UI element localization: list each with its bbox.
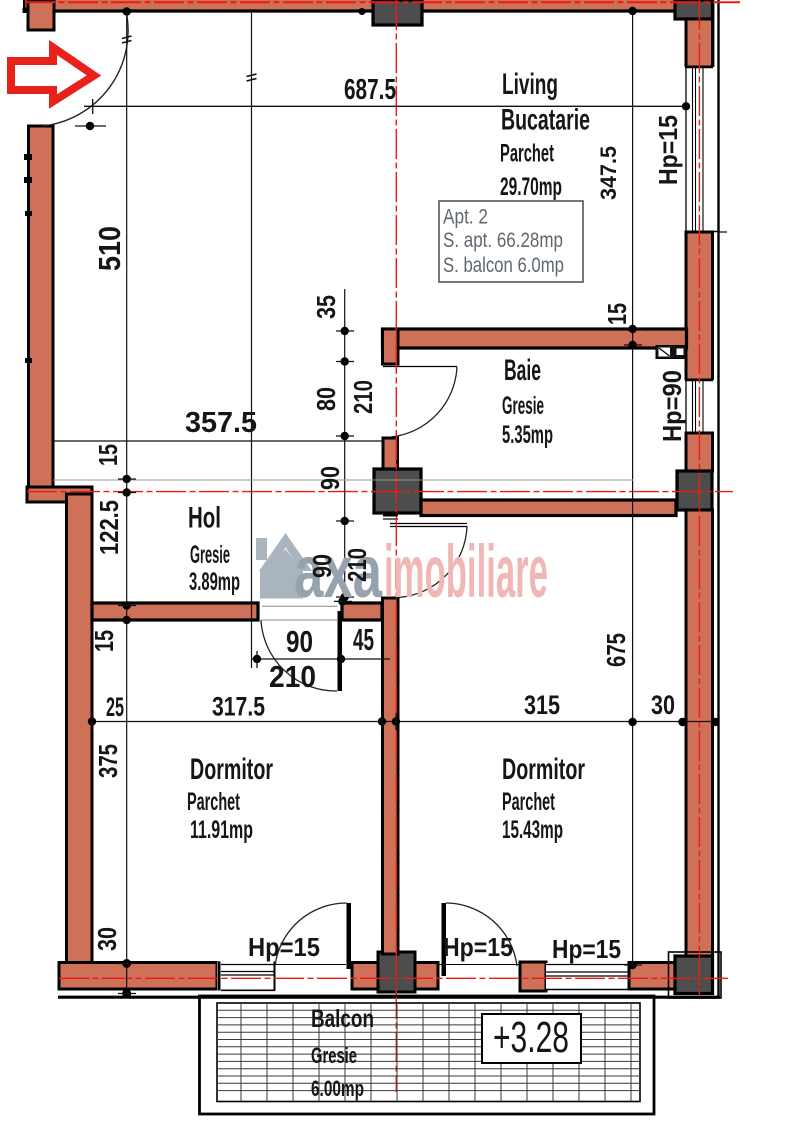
svg-text:Apt. 2: Apt. 2	[443, 206, 488, 229]
svg-text:29.70mp: 29.70mp	[500, 173, 562, 201]
svg-text:210: 210	[342, 548, 372, 582]
svg-text:25: 25	[106, 692, 124, 722]
svg-text:35: 35	[311, 295, 341, 319]
svg-text:675: 675	[601, 633, 631, 667]
svg-text:15: 15	[89, 630, 119, 652]
svg-text:45: 45	[353, 622, 374, 657]
svg-text:Hp=15: Hp=15	[552, 934, 621, 964]
svg-text:210: 210	[348, 380, 378, 414]
svg-text:11.91mp: 11.91mp	[190, 816, 253, 844]
svg-text:687.5: 687.5	[344, 74, 396, 106]
svg-text:Gresie: Gresie	[190, 541, 230, 569]
svg-text:5.35mp: 5.35mp	[502, 421, 553, 449]
svg-text:Dormitor: Dormitor	[190, 753, 273, 786]
svg-text:Hol: Hol	[188, 502, 221, 535]
svg-text:15: 15	[602, 303, 632, 325]
svg-text:Hp=15: Hp=15	[653, 115, 683, 185]
svg-text:510: 510	[92, 226, 127, 271]
svg-text:Hp=15: Hp=15	[443, 932, 513, 962]
svg-text:Hp=90: Hp=90	[657, 370, 687, 442]
svg-text:6.00mp: 6.00mp	[311, 1076, 364, 1101]
svg-text:Living: Living	[502, 68, 558, 101]
svg-text:Parchet: Parchet	[500, 140, 554, 168]
svg-text:3.89mp: 3.89mp	[189, 568, 240, 596]
svg-text:S. balcon 6.0mp: S. balcon 6.0mp	[443, 254, 564, 277]
svg-text:80: 80	[311, 387, 341, 411]
svg-text:Parchet: Parchet	[502, 788, 555, 816]
svg-text:90: 90	[307, 554, 337, 578]
svg-text:210: 210	[269, 659, 316, 694]
svg-text:Baie: Baie	[504, 354, 541, 387]
svg-text:S. apt. 66.28mp: S. apt. 66.28mp	[443, 229, 563, 252]
svg-text:90: 90	[286, 624, 313, 659]
svg-text:15: 15	[93, 444, 123, 466]
svg-text:+3.28: +3.28	[493, 1013, 569, 1062]
svg-text:315: 315	[524, 690, 560, 720]
svg-text:Balcon: Balcon	[311, 1005, 374, 1033]
svg-text:Parchet: Parchet	[187, 788, 240, 816]
svg-text:Gresie: Gresie	[311, 1043, 357, 1068]
svg-text:122.5: 122.5	[94, 500, 124, 555]
svg-text:30: 30	[92, 927, 122, 951]
svg-text:Bucatarie: Bucatarie	[501, 104, 590, 137]
svg-text:imobiliare: imobiliare	[384, 530, 548, 613]
svg-text:90: 90	[315, 466, 345, 490]
svg-text:30: 30	[651, 690, 675, 720]
svg-text:357.5: 357.5	[185, 407, 257, 439]
svg-text:317.5: 317.5	[212, 692, 265, 722]
svg-text:347.5: 347.5	[596, 146, 621, 200]
svg-text:Hp=15: Hp=15	[248, 932, 320, 962]
svg-text:15.43mp: 15.43mp	[502, 816, 563, 844]
svg-text:Gresie: Gresie	[502, 392, 544, 420]
svg-text:375: 375	[93, 744, 123, 778]
svg-text:Dormitor: Dormitor	[502, 753, 585, 786]
